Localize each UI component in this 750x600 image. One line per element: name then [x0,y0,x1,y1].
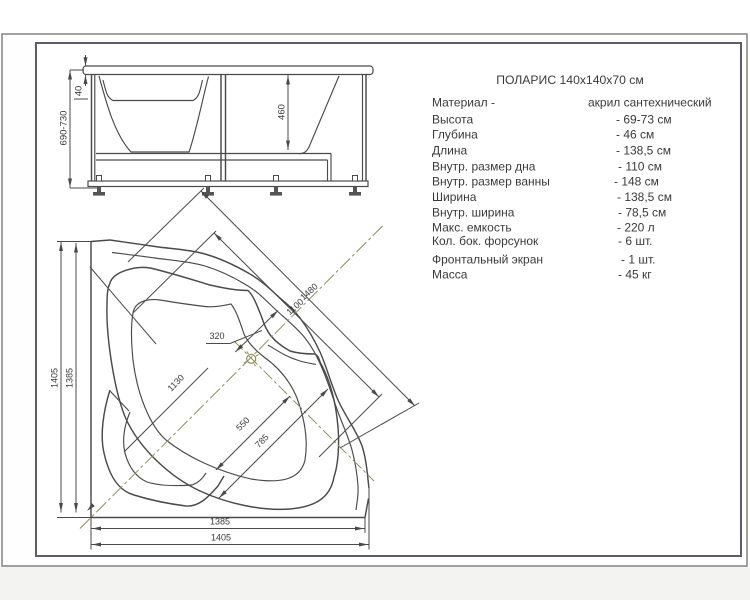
svg-text:- 220 л: - 220 л [617,221,655,235]
svg-text:1385: 1385 [65,368,75,388]
svg-text:акрил сантехнический: акрил сантехнический [588,96,712,110]
svg-text:- 110 см: - 110 см [618,160,662,174]
svg-text:Внутр. ширина: Внутр. ширина [432,206,515,220]
svg-text:Внутр. размер ванны: Внутр. размер ванны [432,175,550,189]
svg-text:1405: 1405 [50,368,60,388]
svg-text:ПОЛАРИС 140х140х70 см: ПОЛАРИС 140х140х70 см [496,73,644,87]
svg-text:40: 40 [74,86,85,97]
svg-text:1385: 1385 [210,517,230,527]
svg-text:Масса: Масса [432,268,468,282]
svg-text:Материал -: Материал - [432,96,495,110]
svg-text:Кол. бок. форсунок: Кол. бок. форсунок [432,234,539,248]
svg-text:690-730: 690-730 [59,111,70,146]
svg-text:Глубина: Глубина [432,128,478,142]
svg-text:- 148 см: - 148 см [614,175,659,189]
svg-text:- 46 см: - 46 см [616,128,654,142]
svg-text:320: 320 [209,331,224,341]
svg-text:Внутр. размер дна: Внутр. размер дна [432,160,536,174]
svg-text:Высота: Высота [432,113,474,127]
svg-text:Ширина: Ширина [432,190,477,204]
svg-text:- 1 шт.: - 1 шт. [621,253,655,267]
svg-text:1405: 1405 [211,533,231,543]
svg-text:- 45 кг: - 45 кг [618,268,652,282]
svg-text:Длина: Длина [432,144,467,158]
svg-text:- 78,5 см: - 78,5 см [618,206,666,220]
svg-text:- 138,5 см: - 138,5 см [617,190,672,204]
svg-text:460: 460 [277,104,288,120]
svg-text:- 6 шт.: - 6 шт. [618,234,652,248]
svg-text:- 69-73 см: - 69-73 см [616,113,672,127]
svg-text:- 138,5 см: - 138,5 см [616,144,671,158]
svg-text:Макс. емкость: Макс. емкость [432,221,512,235]
svg-text:Фронтальный экран: Фронтальный экран [432,253,543,267]
